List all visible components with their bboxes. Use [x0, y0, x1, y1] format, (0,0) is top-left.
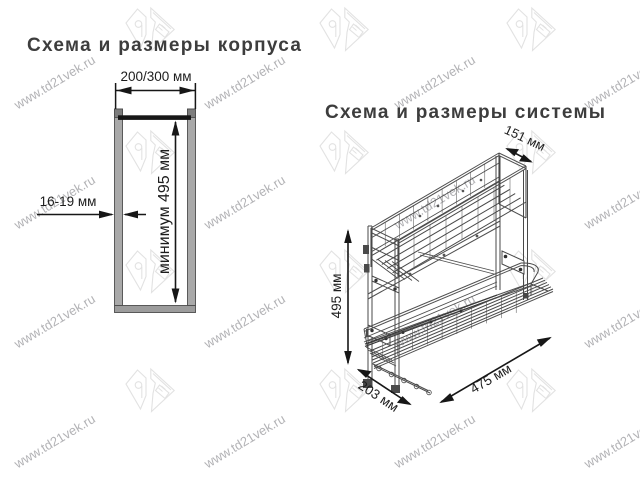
svg-text:16-19 мм: 16-19 мм — [40, 194, 97, 209]
svg-text:Схема и размеры корпуса: Схема и размеры корпуса — [27, 35, 301, 56]
svg-text:495 мм: 495 мм — [329, 274, 344, 319]
svg-text:минимум 495 мм: минимум 495 мм — [156, 149, 173, 274]
svg-text:200/300 мм: 200/300 мм — [120, 69, 191, 84]
